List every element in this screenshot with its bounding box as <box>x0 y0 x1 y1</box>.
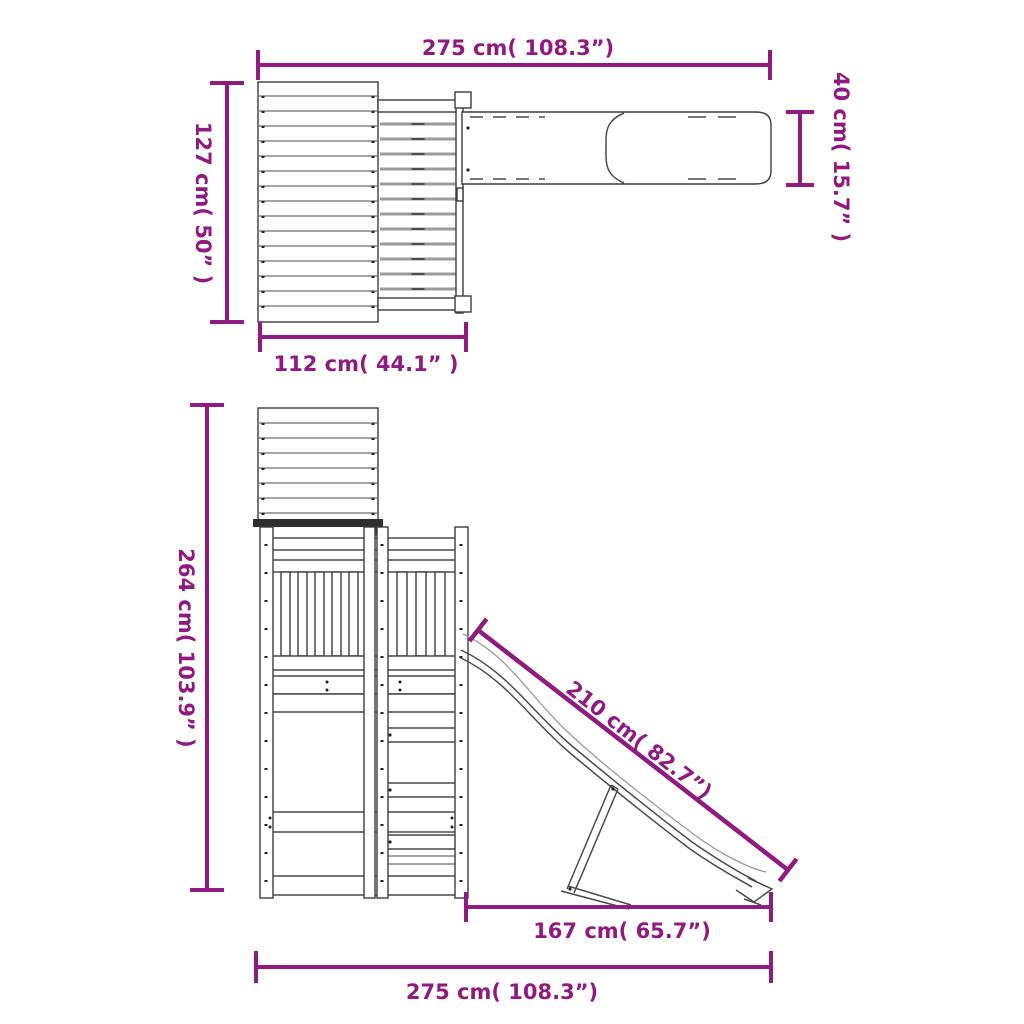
deck-plan <box>378 92 471 313</box>
slide-plan-outline <box>462 112 771 184</box>
diagram-canvas: 275 cm( 108.3”) 127 cm( 50” ) 40 cm( 15.… <box>0 0 1024 1024</box>
slide-run-label: 167 cm( 65.7”) <box>533 919 711 943</box>
dim-slide-width: 40 cm( 15.7” ) <box>786 72 853 242</box>
ladder <box>384 728 466 864</box>
slide-width-label: 40 cm( 15.7” ) <box>829 72 853 242</box>
ladder-rung <box>384 783 466 797</box>
slide-plan <box>462 112 771 184</box>
dim-top-depth: 127 cm( 50” ) <box>191 83 244 322</box>
deck-corner-post-bottom <box>455 296 471 312</box>
post-middle-a <box>364 527 375 898</box>
slide-plan-bolt <box>466 168 469 171</box>
dim-slide-run: 167 cm( 65.7”) <box>466 892 771 943</box>
slide-plan-bolt <box>466 126 469 129</box>
side-view: 264 cm( 103.9” ) 210 cm( 82.7”) 167 cm( … <box>174 405 797 1004</box>
deck-top-rail <box>378 100 458 112</box>
total-width-label: 275 cm( 108.3”) <box>406 980 598 1004</box>
top-overall-width-label: 275 cm( 108.3”) <box>422 36 614 60</box>
house-depth-label: 112 cm( 44.1” ) <box>274 352 459 376</box>
roof-side-outline <box>258 408 378 521</box>
height-label: 264 cm( 103.9” ) <box>174 548 198 748</box>
deck-corner-post-top <box>455 92 471 108</box>
deck-slats <box>380 124 456 289</box>
slide-support-leg <box>561 785 631 909</box>
dim-house-depth: 112 cm( 44.1” ) <box>260 322 466 376</box>
tower-frame <box>260 527 468 898</box>
deck-side-tab <box>457 188 463 201</box>
top-view: 275 cm( 108.3”) 127 cm( 50” ) 40 cm( 15.… <box>191 36 853 376</box>
dim-height: 264 cm( 103.9” ) <box>174 405 224 890</box>
slide-length-label: 210 cm( 82.7”) <box>561 676 716 804</box>
roof-eave <box>253 519 383 527</box>
roof-plan-outline <box>258 82 378 322</box>
roof-side <box>253 408 383 535</box>
slide-side <box>459 634 772 909</box>
dim-top-overall-width: 275 cm( 108.3”) <box>258 36 770 80</box>
dim-slide-length: 210 cm( 82.7”) <box>469 619 796 881</box>
top-depth-label: 127 cm( 50” ) <box>191 122 215 284</box>
dim-total-width: 275 cm( 108.3”) <box>256 951 771 1004</box>
railing-balusters <box>281 572 445 656</box>
ladder-rung <box>384 835 466 849</box>
slide-foot <box>736 878 772 905</box>
roof-plan <box>258 82 378 322</box>
slide-far-rail <box>463 634 766 872</box>
playset-dimension-diagram: 275 cm( 108.3”) 127 cm( 50” ) 40 cm( 15.… <box>0 0 1024 1024</box>
deck-bottom-rail <box>378 298 458 310</box>
ladder-rung <box>384 728 466 742</box>
